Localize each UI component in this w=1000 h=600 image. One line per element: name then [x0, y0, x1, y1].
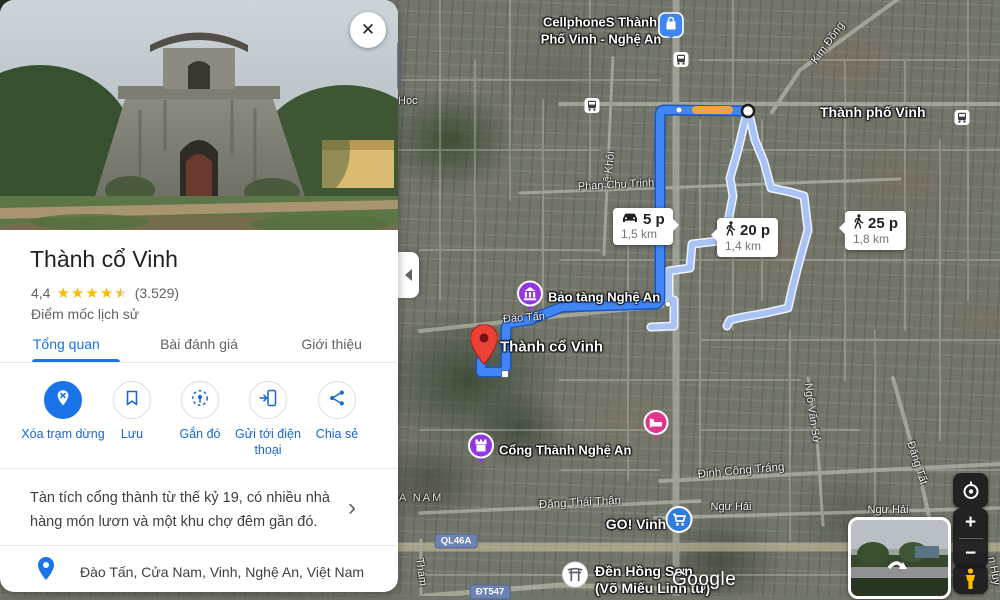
- star-icon: ★: [100, 286, 114, 301]
- destination-pin[interactable]: [471, 325, 498, 370]
- district-label: A NAM: [399, 492, 443, 504]
- send-to-phone-icon: [258, 388, 278, 413]
- review-count[interactable]: (3.529): [135, 285, 179, 301]
- bookmark-icon: [123, 389, 141, 412]
- cellphones-store-marker[interactable]: [658, 12, 684, 48]
- zoom-control: + −: [953, 508, 988, 568]
- address-row[interactable]: Đào Tấn, Cửa Nam, Vinh, Nghệ An, Việt Na…: [0, 556, 398, 587]
- route-duration: 25 p: [868, 215, 898, 232]
- street-label: Học: [398, 95, 418, 107]
- zoom-out-button[interactable]: −: [953, 541, 988, 566]
- pin-icon: [190, 388, 210, 413]
- route-distance: 1,8 km: [853, 232, 898, 246]
- walk-route-callout[interactable]: 20 p 1,4 km: [717, 218, 778, 257]
- action-label: Chia sẻ: [316, 426, 358, 442]
- zoom-in-button[interactable]: +: [953, 510, 988, 535]
- place-panel: ✕ Thành cổ Vinh 4,4 ★★★★★★ (3.529) Điểm …: [0, 0, 398, 592]
- star-icon: ★: [85, 286, 99, 301]
- place-photo[interactable]: [0, 0, 398, 230]
- share-icon: [328, 389, 346, 412]
- remove-stop-icon: [53, 388, 73, 413]
- share-button[interactable]: Chia sẻ: [295, 381, 379, 442]
- street-label: Ngư Hải: [868, 504, 909, 516]
- page-title: Thành cổ Vinh: [30, 246, 178, 273]
- star-rating: ★★★★★★: [56, 286, 128, 301]
- route-origin-label[interactable]: Thành phố Vinh: [820, 104, 926, 120]
- address-pin-icon: [36, 556, 56, 587]
- street-label: Ngư Hải: [711, 501, 752, 513]
- road-badge: ĐT547: [470, 585, 511, 600]
- walk-route-callout[interactable]: 25 p 1,8 km: [845, 211, 906, 250]
- route-duration: 20 p: [740, 222, 770, 239]
- rating-value: 4,4: [31, 285, 50, 301]
- walk-icon: [725, 221, 736, 240]
- bus-stop-icon[interactable]: [585, 98, 600, 118]
- temple-marker[interactable]: [561, 561, 589, 596]
- google-logo: Google: [672, 569, 736, 591]
- place-category[interactable]: Điểm mốc lịch sử: [31, 306, 139, 322]
- pegman-button[interactable]: [953, 564, 988, 594]
- bus-stop-icon[interactable]: [955, 110, 970, 130]
- poi-label-citadel-gate[interactable]: Cổng Thành Nghệ An: [499, 443, 631, 458]
- car-icon: [621, 211, 639, 228]
- route-duration: 5 p: [643, 211, 665, 228]
- my-location-button[interactable]: [953, 473, 988, 508]
- go-vinh-marker[interactable]: [665, 506, 693, 539]
- destination-label[interactable]: Thành cổ Vinh: [500, 339, 603, 356]
- route-distance: 1,5 km: [621, 227, 665, 241]
- star-half-icon: ★★: [114, 286, 128, 301]
- star-icon: ★: [71, 286, 85, 301]
- chevron-left-icon: [405, 269, 412, 281]
- drive-route-callout[interactable]: 5 p 1,5 km: [613, 208, 673, 245]
- action-label: Lưu: [121, 426, 143, 442]
- poi-label-cellphones-line1[interactable]: CellphoneS Thành: [543, 15, 657, 30]
- road-badge: QL46A: [435, 534, 478, 549]
- collapse-panel-button[interactable]: [398, 252, 419, 298]
- divider: [0, 545, 398, 546]
- close-icon: ✕: [361, 20, 375, 40]
- chevron-right-icon[interactable]: ›: [348, 494, 356, 522]
- place-address: Đào Tấn, Cửa Nam, Vinh, Nghệ An, Việt Na…: [80, 564, 364, 580]
- hotel-marker[interactable]: [643, 410, 669, 447]
- place-description: Tàn tích cổng thành từ thế kỷ 19, có nhi…: [30, 486, 332, 534]
- bus-stop-icon[interactable]: [674, 52, 689, 72]
- poi-label-go-vinh[interactable]: GO! Vinh: [606, 516, 666, 532]
- star-icon: ★: [56, 286, 70, 301]
- poi-label-museum[interactable]: Bảo tàng Nghệ An: [548, 290, 660, 305]
- tab-about[interactable]: Giới thiệu: [265, 330, 398, 363]
- street-view-thumbnail[interactable]: [848, 517, 951, 599]
- panel-scrollbar[interactable]: [397, 42, 402, 90]
- citadel-gate-marker[interactable]: [467, 432, 495, 471]
- poi-label-cellphones-line2[interactable]: Phố Vinh - Nghệ An: [541, 32, 662, 47]
- divider: [0, 468, 398, 469]
- divider: [0, 362, 398, 363]
- action-label: Gắn đó: [179, 426, 220, 442]
- close-button[interactable]: ✕: [350, 12, 386, 48]
- walk-icon: [853, 214, 864, 233]
- tab-reviews[interactable]: Bài đánh giá: [133, 330, 266, 363]
- route-distance: 1,4 km: [725, 239, 770, 253]
- zoom-divider: [959, 538, 983, 539]
- rating-row[interactable]: 4,4 ★★★★★★ (3.529): [31, 285, 179, 301]
